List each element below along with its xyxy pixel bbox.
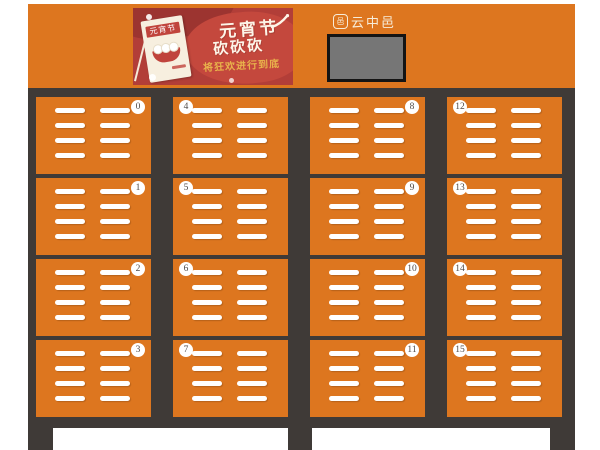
vent-slat [55,204,85,209]
door-number-badge: 0 [131,100,145,114]
door-vents [329,270,404,320]
vent-slat [100,219,130,224]
vent-slat [511,381,541,386]
vent-slat [237,153,267,158]
door-vents [466,108,541,158]
vent-slat [329,270,359,275]
vent-slat [192,153,222,158]
vent-slat [237,219,267,224]
vent-slat [329,123,359,128]
vent-slat [511,396,541,401]
vent-slat [466,270,496,275]
vent-slat [192,204,222,209]
door-vents [329,189,404,239]
vent-slat [329,189,359,194]
vent-slat [374,315,404,320]
vent-slat [511,300,541,305]
door-number-badge: 9 [405,181,419,195]
door-number-badge: 7 [179,343,193,357]
vent-slat [55,234,85,239]
door-vents [55,270,130,320]
vent-slat [237,285,267,290]
vent-slat [511,123,541,128]
calendar-title: 元宵节 [145,22,180,38]
door-vents [55,189,130,239]
locker-door-9[interactable]: 9 [310,178,425,255]
vent-slat [237,381,267,386]
door-number-badge: 11 [405,343,419,357]
cabinet-leg-center [288,428,312,450]
vent-slat [55,189,85,194]
vent-slat [511,285,541,290]
decor-dot [149,74,156,81]
door-vents [192,351,267,401]
vent-slat [237,315,267,320]
vent-slat [511,108,541,113]
vent-slat [466,123,496,128]
vent-slat [100,381,130,386]
vent-slat [511,138,541,143]
promo-banner: 元宵节 元宵节 砍砍砍 将狂欢进行到底 [133,8,293,85]
vent-slat [237,396,267,401]
vent-slat [100,351,130,356]
vent-slat [511,204,541,209]
vent-slat [466,285,496,290]
vent-slat [192,396,222,401]
door-number-badge: 1 [131,181,145,195]
vent-slat [466,351,496,356]
vent-slat [100,315,130,320]
brand-name: 云中邑 [351,12,396,31]
door-number-badge: 6 [179,262,193,276]
vent-slat [55,108,85,113]
vent-slat [466,219,496,224]
vent-slat [374,300,404,305]
vent-slat [100,285,130,290]
vent-slat [329,285,359,290]
vent-slat [511,234,541,239]
vent-slat [466,366,496,371]
locker-door-10[interactable]: 10 [310,259,425,336]
vent-slat [192,189,222,194]
door-vents [329,108,404,158]
vent-slat [237,189,267,194]
locker-door-0[interactable]: 0 [36,97,151,174]
vent-slat [511,366,541,371]
locker-door-13[interactable]: 13 [447,178,562,255]
door-vents [192,270,267,320]
door-vents [466,189,541,239]
vent-slat [329,315,359,320]
locker-door-3[interactable]: 3 [36,340,151,417]
vent-slat [55,381,85,386]
vent-slat [55,270,85,275]
vent-slat [192,381,222,386]
vent-slat [374,189,404,194]
locker-door-12[interactable]: 12 [447,97,562,174]
locker-door-6[interactable]: 6 [173,259,288,336]
vent-slat [100,153,130,158]
vent-slat [374,381,404,386]
vent-slat [511,189,541,194]
vent-slat [55,153,85,158]
decor-dot [146,14,152,20]
vent-slat [374,108,404,113]
vent-slat [237,108,267,113]
vent-slat [100,138,130,143]
vent-slat [374,270,404,275]
vent-slat [466,234,496,239]
vent-slat [511,351,541,356]
vent-slat [192,234,222,239]
calendar-date-mark [172,64,186,69]
vent-slat [466,153,496,158]
cabinet-header: 元宵节 元宵节 砍砍砍 将狂欢进行到底 [28,4,575,88]
door-number-badge: 10 [405,262,419,276]
vent-slat [329,366,359,371]
vent-slat [100,108,130,113]
door-vents [329,351,404,401]
brand-seal-glyph: 邑 [337,18,345,26]
vent-slat [55,300,85,305]
door-number-badge: 15 [453,343,467,357]
vent-slat [100,189,130,194]
door-vents [55,351,130,401]
locker-door-2[interactable]: 2 [36,259,151,336]
vent-slat [100,366,130,371]
vent-slat [100,123,130,128]
door-vents [466,270,541,320]
vent-slat [100,300,130,305]
vent-slat [466,204,496,209]
vent-slat [100,234,130,239]
locker-grid: 0481215913261014371115 [36,97,562,417]
vent-slat [237,204,267,209]
vent-slat [55,396,85,401]
vent-slat [192,219,222,224]
vent-slat [192,138,222,143]
vent-slat [192,270,222,275]
vent-slat [192,285,222,290]
vent-slat [55,123,85,128]
locker-door-7[interactable]: 7 [173,340,288,417]
locker-cabinet: 元宵节 元宵节 砍砍砍 将狂欢进行到底 [28,4,575,428]
locker-door-15[interactable]: 15 [447,340,562,417]
vent-slat [374,138,404,143]
vent-slat [374,204,404,209]
vent-slat [237,234,267,239]
vent-slat [511,270,541,275]
vent-slat [374,234,404,239]
door-vents [55,108,130,158]
vent-slat [192,315,222,320]
locker-door-8[interactable]: 8 [310,97,425,174]
vent-slat [329,300,359,305]
vent-slat [100,396,130,401]
locker-grid-frame: 0481215913261014371115 [28,88,575,428]
vent-slat [55,138,85,143]
vent-slat [329,351,359,356]
locker-door-11[interactable]: 11 [310,340,425,417]
door-number-badge: 14 [453,262,467,276]
vent-slat [237,123,267,128]
vent-slat [374,285,404,290]
door-vents [192,189,267,239]
vent-slat [237,351,267,356]
vent-slat [192,108,222,113]
vent-slat [329,396,359,401]
vent-slat [192,351,222,356]
vent-slat [374,123,404,128]
vent-slat [329,234,359,239]
vent-slat [237,300,267,305]
vent-slat [466,396,496,401]
vent-slat [192,123,222,128]
vent-slat [374,219,404,224]
vent-slat [329,219,359,224]
vent-slat [192,300,222,305]
locker-door-1[interactable]: 1 [36,178,151,255]
vent-slat [329,138,359,143]
tangyuan-balls-icon [144,40,187,54]
vent-slat [466,315,496,320]
vent-slat [55,351,85,356]
door-number-badge: 12 [453,100,467,114]
door-number-badge: 13 [453,181,467,195]
cabinet-leg-right [550,428,575,450]
vent-slat [237,366,267,371]
door-vents [192,108,267,158]
vent-slat [100,204,130,209]
vent-slat [329,381,359,386]
vent-slat [511,219,541,224]
locker-door-4[interactable]: 4 [173,97,288,174]
vent-slat [192,366,222,371]
brand-logo: 邑 云中邑 [333,12,396,31]
vent-slat [329,204,359,209]
vent-slat [466,108,496,113]
door-number-badge: 3 [131,343,145,357]
vent-slat [466,189,496,194]
vent-slat [329,153,359,158]
vent-slat [374,351,404,356]
vent-slat [466,300,496,305]
vent-slat [55,285,85,290]
display-screen[interactable] [327,34,406,82]
door-number-badge: 5 [179,181,193,195]
door-number-badge: 8 [405,100,419,114]
vent-slat [55,366,85,371]
vent-slat [237,138,267,143]
brush-icon [270,13,290,31]
vent-slat [511,315,541,320]
locker-door-5[interactable]: 5 [173,178,288,255]
vent-slat [237,270,267,275]
vent-slat [329,108,359,113]
vent-slat [374,153,404,158]
vent-slat [55,219,85,224]
vent-slat [374,366,404,371]
vent-slat [55,315,85,320]
door-vents [466,351,541,401]
decor-dot [229,78,234,83]
vent-slat [466,381,496,386]
vent-slat [374,396,404,401]
door-number-badge: 4 [179,100,193,114]
cabinet-leg-left [28,428,53,450]
vent-slat [466,138,496,143]
door-number-badge: 2 [131,262,145,276]
brand-seal-icon: 邑 [333,14,348,29]
vent-slat [100,270,130,275]
vent-slat [511,153,541,158]
locker-door-14[interactable]: 14 [447,259,562,336]
